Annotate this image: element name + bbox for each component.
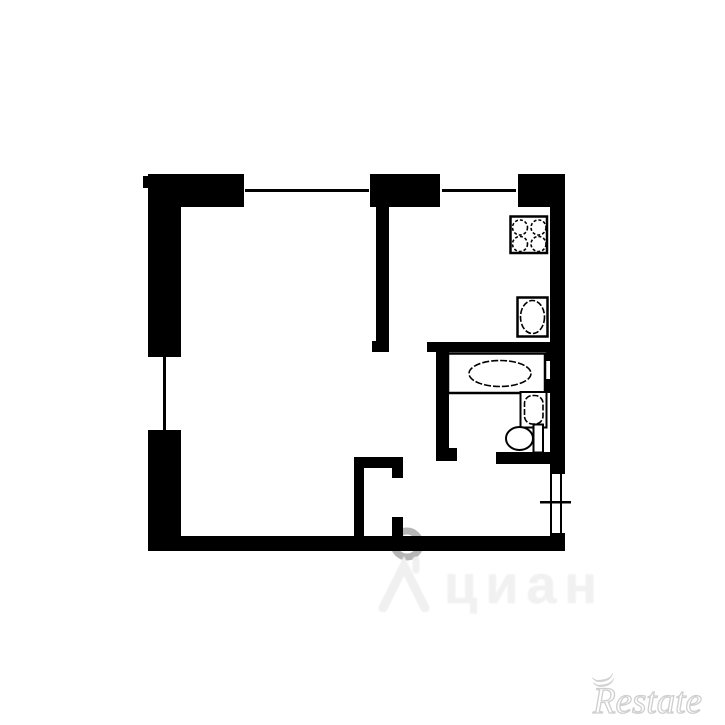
wall-divider-foot	[372, 341, 389, 352]
wall-closet-left	[354, 457, 364, 538]
window-mullion	[245, 189, 369, 192]
wall-stub-tub-bottom	[546, 379, 551, 393]
wall-closet-jamb-bottom	[392, 517, 403, 538]
wall-left-upper	[148, 174, 181, 357]
wall-toilet-bottom	[496, 452, 550, 464]
wall-left-lower	[148, 430, 181, 551]
wall-bottom	[148, 536, 564, 551]
kitchen-sink-icon	[518, 298, 548, 337]
wall-right-upper	[550, 174, 565, 474]
wall-bathroom-left-foot	[436, 448, 457, 461]
toilet-icon	[506, 425, 543, 453]
window-mullion	[163, 357, 166, 430]
bathtub-icon	[448, 354, 545, 394]
wall-living-kitchen-divider	[376, 207, 389, 352]
washbasin-icon	[521, 392, 547, 428]
door-leaf-line	[540, 501, 571, 504]
floor-plan	[0, 0, 725, 725]
entrance-door-right-wall	[540, 474, 571, 533]
wall-stub-tub-top	[546, 352, 551, 361]
floor-plan-image: циан )) Restate	[0, 0, 725, 725]
wall-closet-top	[354, 457, 403, 468]
wall-top-middle	[370, 174, 440, 207]
stove-4-burner-icon	[511, 217, 548, 254]
wall-closet-jamb-top	[392, 468, 403, 478]
window-mullion	[442, 189, 516, 192]
